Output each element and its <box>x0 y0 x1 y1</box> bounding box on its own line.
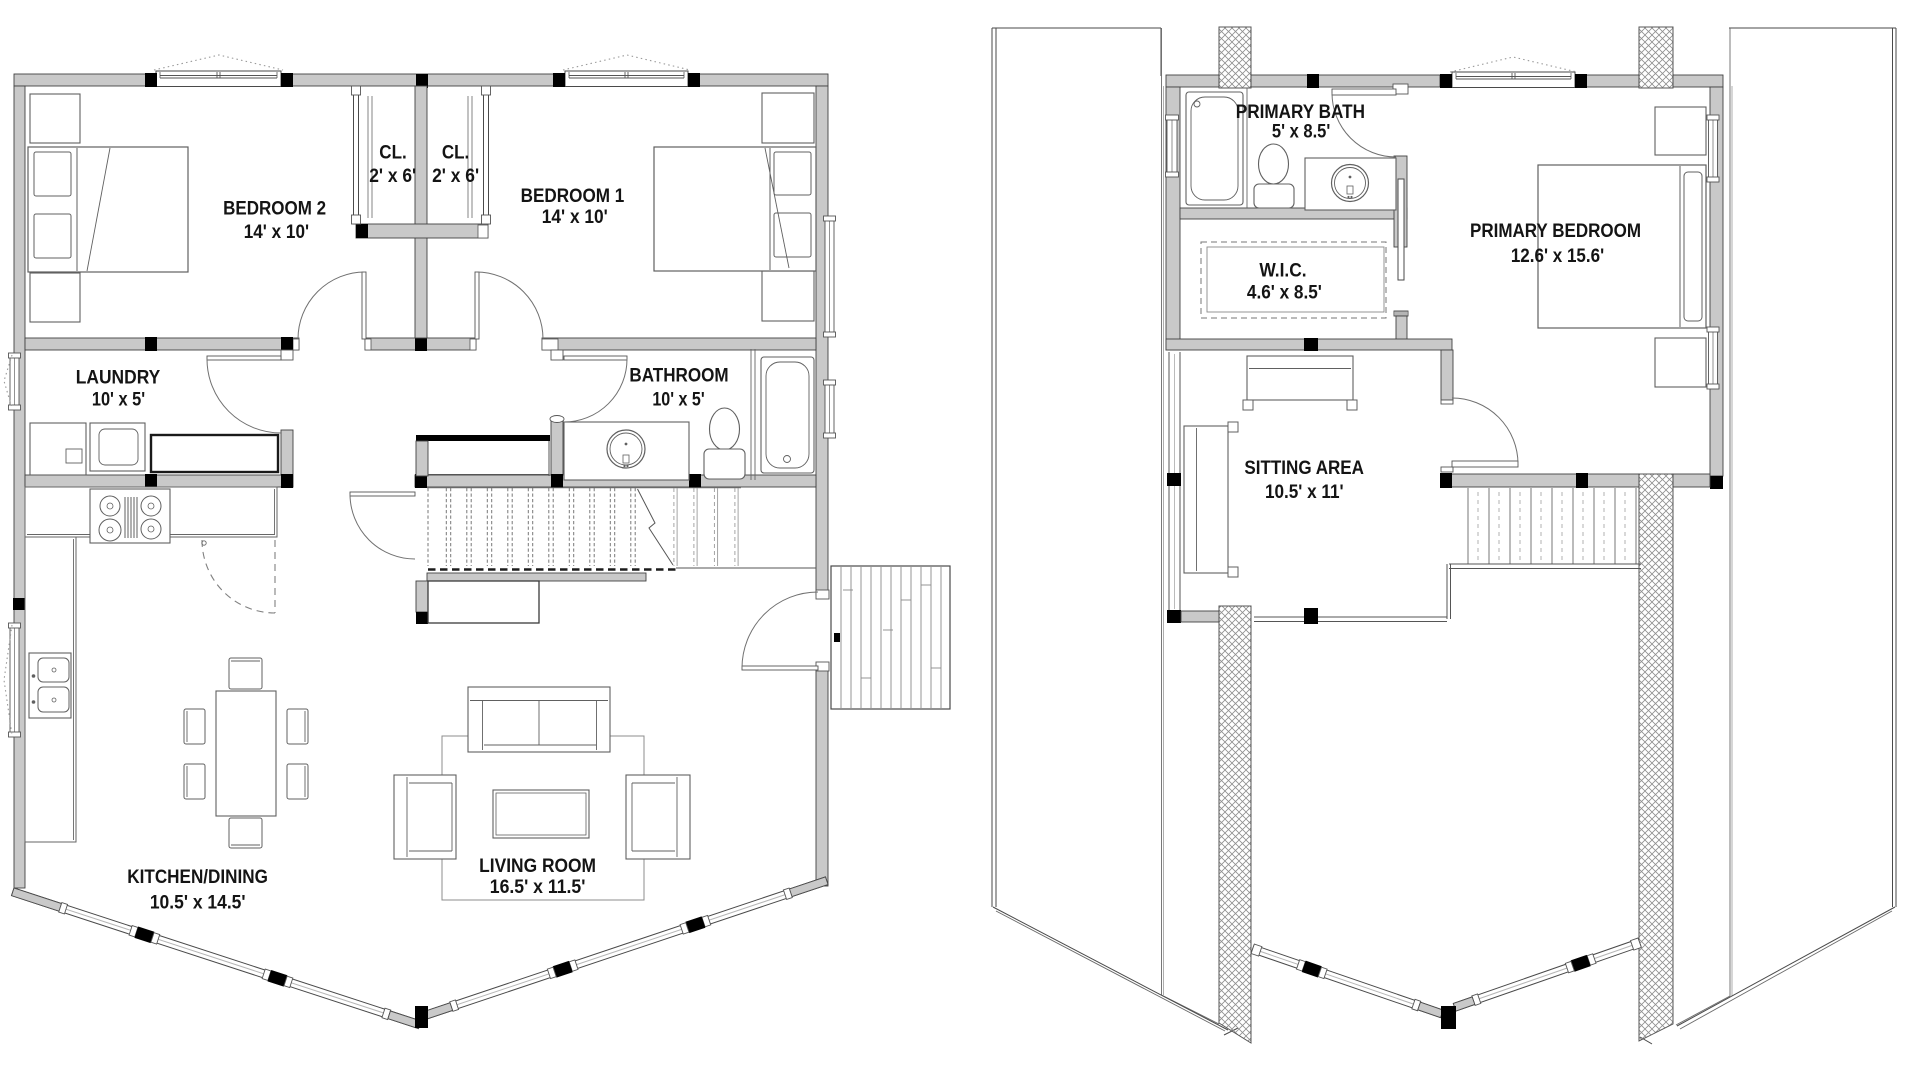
svg-text:BEDROOM 2: BEDROOM 2 <box>223 198 326 220</box>
svg-text:10.5' x 11': 10.5' x 11' <box>1265 481 1344 503</box>
svg-text:LAUNDRY: LAUNDRY <box>76 366 161 388</box>
svg-text:CL.: CL. <box>379 141 406 163</box>
svg-text:BATHROOM: BATHROOM <box>629 364 728 386</box>
svg-text:2' x 6': 2' x 6' <box>369 165 416 187</box>
svg-text:KITCHEN/DINING: KITCHEN/DINING <box>127 866 268 888</box>
svg-text:4.6' x 8.5': 4.6' x 8.5' <box>1247 282 1322 304</box>
svg-text:PRIMARY BEDROOM: PRIMARY BEDROOM <box>1470 220 1641 242</box>
svg-text:14' x 10': 14' x 10' <box>542 206 608 228</box>
svg-text:12.6' x 15.6': 12.6' x 15.6' <box>1511 245 1604 267</box>
svg-text:10' x 5': 10' x 5' <box>652 388 704 410</box>
svg-text:SITTING AREA: SITTING AREA <box>1244 457 1364 479</box>
svg-text:LIVING ROOM: LIVING ROOM <box>479 855 596 877</box>
svg-text:2' x 6': 2' x 6' <box>432 165 479 187</box>
svg-text:16.5' x 11.5': 16.5' x 11.5' <box>490 876 586 898</box>
svg-text:5' x 8.5': 5' x 8.5' <box>1272 121 1330 143</box>
svg-text:CL.: CL. <box>442 141 469 163</box>
svg-text:14' x 10': 14' x 10' <box>244 221 309 243</box>
svg-text:10.5' x 14.5': 10.5' x 14.5' <box>150 892 246 914</box>
svg-text:10' x 5': 10' x 5' <box>92 389 145 411</box>
svg-text:BEDROOM 1: BEDROOM 1 <box>521 185 625 207</box>
svg-text:W.I.C.: W.I.C. <box>1259 259 1306 281</box>
